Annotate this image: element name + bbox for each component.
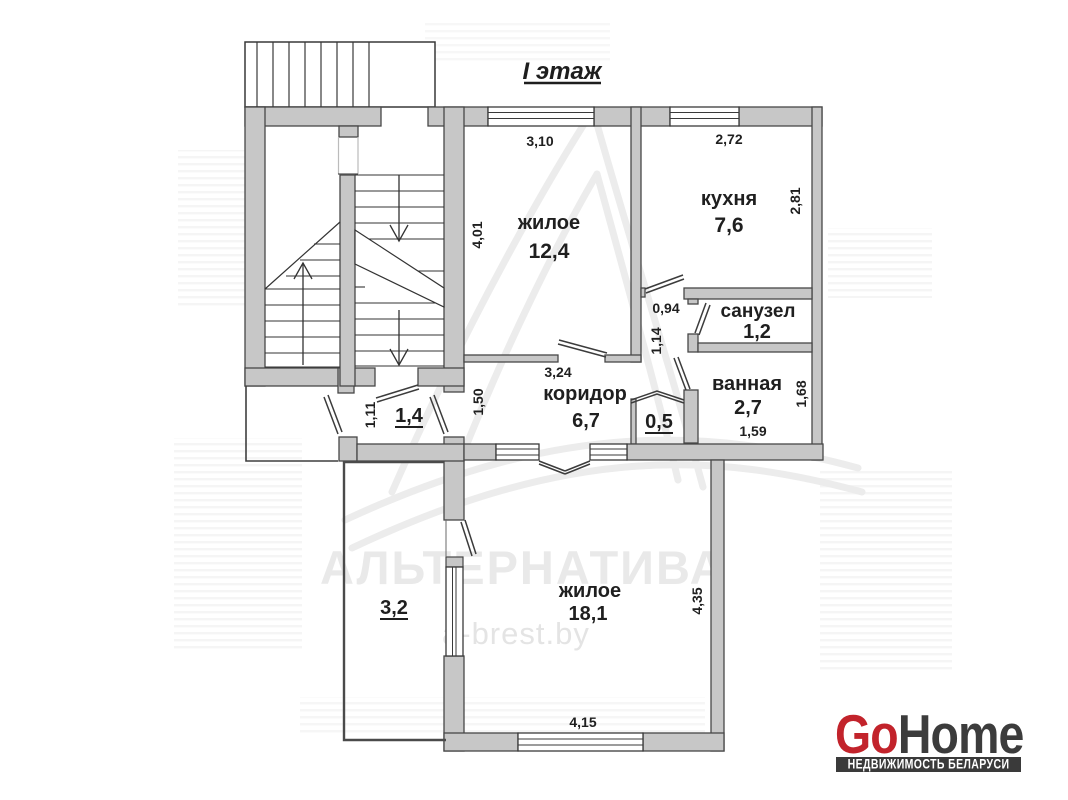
svg-text:1,59: 1,59 bbox=[739, 423, 766, 439]
svg-text:I этаж: I этаж bbox=[523, 58, 603, 85]
svg-text:жилое: жилое bbox=[558, 580, 621, 602]
svg-text:2,72: 2,72 bbox=[715, 131, 742, 147]
svg-text:1,14: 1,14 bbox=[648, 327, 664, 354]
svg-text:3,10: 3,10 bbox=[526, 133, 553, 149]
svg-text:7,6: 7,6 bbox=[714, 214, 743, 237]
svg-text:18,1: 18,1 bbox=[569, 603, 608, 625]
svg-text:1,11: 1,11 bbox=[362, 402, 378, 429]
svg-text:1,4: 1,4 bbox=[395, 405, 424, 427]
svg-text:6,7: 6,7 bbox=[572, 410, 600, 432]
svg-text:2,81: 2,81 bbox=[787, 187, 803, 214]
svg-text:коридор: коридор bbox=[543, 383, 627, 405]
svg-text:1,68: 1,68 bbox=[793, 380, 809, 407]
svg-text:12,4: 12,4 bbox=[529, 240, 570, 263]
svg-text:0,5: 0,5 bbox=[645, 411, 673, 433]
svg-text:1,50: 1,50 bbox=[470, 388, 486, 415]
svg-text:4,35: 4,35 bbox=[689, 587, 705, 614]
svg-text:кухня: кухня bbox=[701, 188, 757, 210]
svg-text:4,01: 4,01 bbox=[469, 221, 485, 248]
svg-text:3,2: 3,2 bbox=[380, 597, 408, 619]
svg-text:санузел: санузел bbox=[721, 301, 796, 322]
svg-text:2,7: 2,7 bbox=[734, 397, 762, 419]
svg-text:АЛЬТЕРНАТИВА: АЛЬТЕРНАТИВА bbox=[320, 541, 726, 594]
svg-text:1,2: 1,2 bbox=[743, 321, 771, 343]
svg-text:ванная: ванная bbox=[712, 373, 782, 395]
svg-text:НЕДВИЖИМОСТЬ БЕЛАРУСИ: НЕДВИЖИМОСТЬ БЕЛАРУСИ bbox=[848, 756, 1010, 772]
svg-text:0,94: 0,94 bbox=[652, 300, 679, 316]
svg-text:жилое: жилое bbox=[517, 212, 580, 234]
svg-text:3,24: 3,24 bbox=[544, 364, 571, 380]
svg-text:4,15: 4,15 bbox=[569, 714, 596, 730]
